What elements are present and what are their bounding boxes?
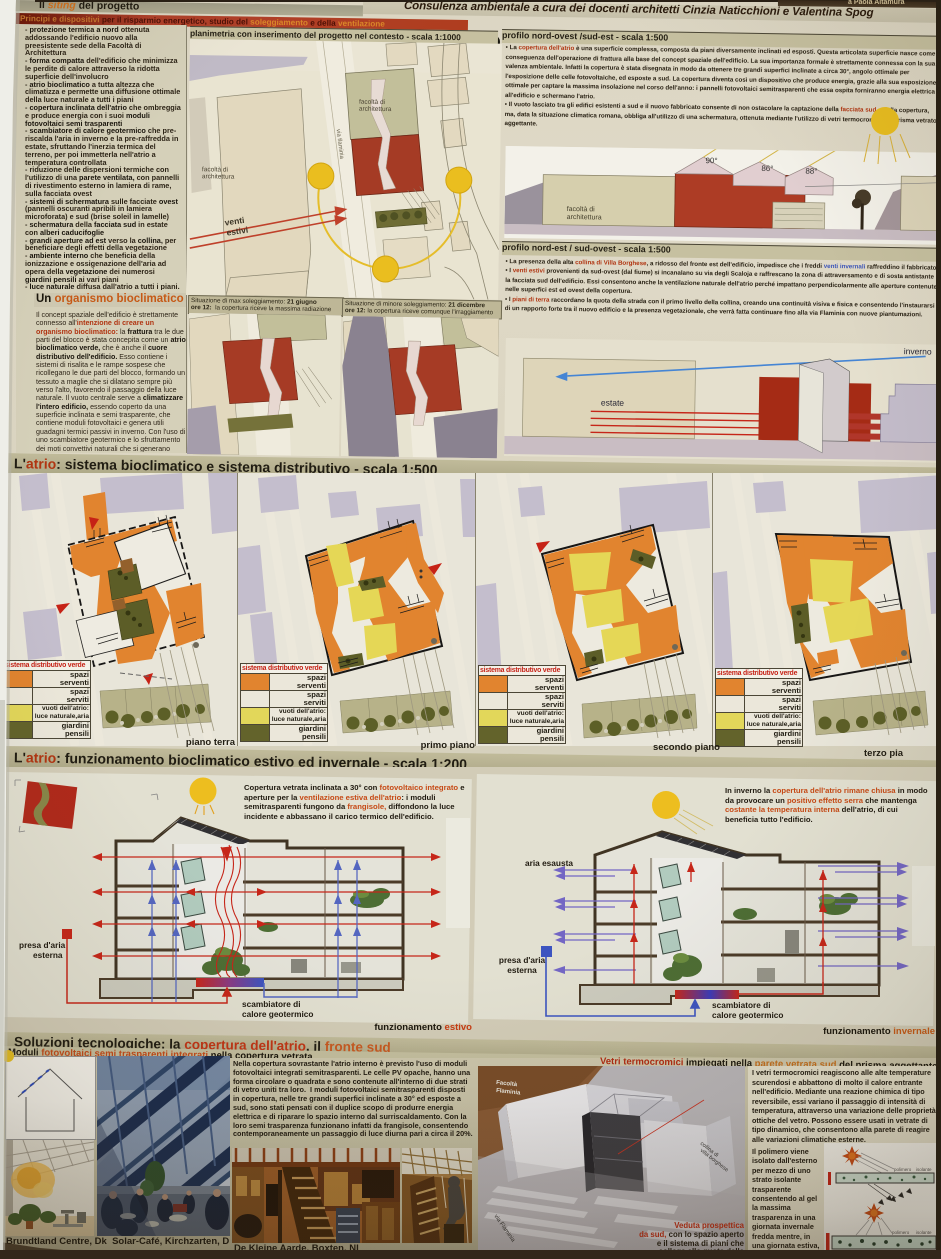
svg-text:90°: 90° (705, 156, 717, 165)
svg-text:86°: 86° (761, 164, 773, 173)
svg-text:polimero: polimero (894, 1167, 912, 1172)
svg-text:88°: 88° (805, 167, 817, 176)
svg-text:architettura: architettura (359, 106, 392, 114)
svg-text:inverno: inverno (904, 346, 932, 356)
svg-text:architettura: architettura (567, 214, 602, 222)
svg-text:isolante: isolante (916, 1167, 932, 1172)
svg-text:facoltà di: facoltà di (567, 206, 596, 213)
svg-text:architettura: architettura (202, 173, 235, 181)
svg-text:polimero: polimero (892, 1230, 910, 1235)
svg-text:estate: estate (601, 397, 625, 407)
svg-text:isolante: isolante (916, 1230, 932, 1235)
